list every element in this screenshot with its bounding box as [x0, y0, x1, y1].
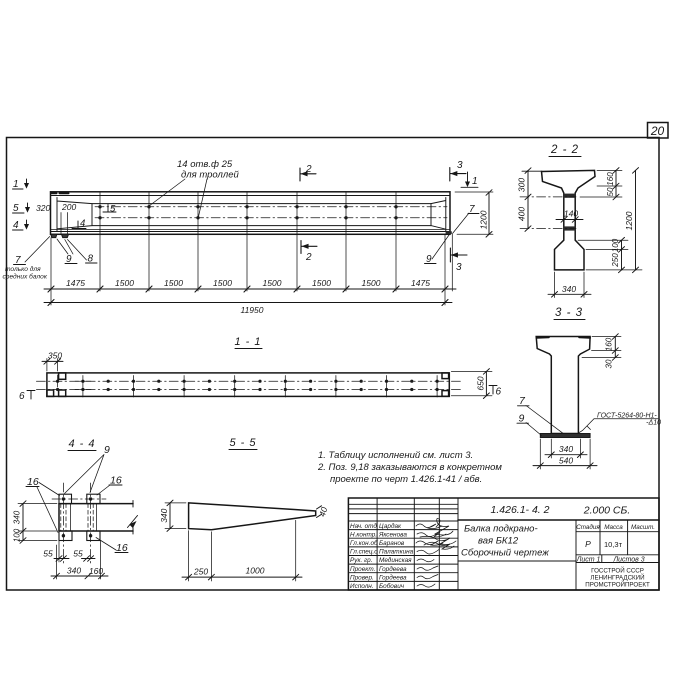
svg-text:10,3т: 10,3т: [604, 540, 623, 549]
svg-text:Яксенова: Яксенова: [378, 531, 407, 538]
svg-text:Проект.: Проект.: [350, 566, 375, 573]
svg-text:30: 30: [605, 359, 614, 368]
svg-text:100: 100: [13, 528, 22, 542]
svg-text:4: 4: [80, 218, 85, 229]
svg-text:средних балок: средних балок: [3, 273, 48, 281]
svg-text:Масшт.: Масшт.: [631, 524, 655, 531]
svg-text:20: 20: [650, 124, 665, 138]
svg-text:1475: 1475: [411, 278, 430, 288]
svg-text:Нач. отд: Нач. отд: [350, 522, 377, 530]
svg-text:Мединская: Мединская: [379, 556, 412, 564]
svg-text:5: 5: [13, 203, 19, 214]
svg-text:540: 540: [559, 455, 573, 465]
svg-text:3 - 3: 3 - 3: [555, 307, 583, 319]
svg-text:1500: 1500: [312, 278, 331, 288]
svg-text:300: 300: [517, 178, 527, 192]
svg-text:1: 1: [13, 179, 19, 190]
svg-text:400: 400: [517, 207, 527, 221]
svg-text:Гордеева: Гордеева: [379, 573, 407, 581]
svg-text:1200: 1200: [479, 210, 489, 229]
svg-text:320: 320: [36, 203, 50, 213]
svg-text:5 - 5: 5 - 5: [229, 437, 256, 449]
svg-text:160: 160: [606, 172, 615, 186]
svg-text:340: 340: [159, 508, 169, 522]
svg-text:340: 340: [562, 284, 576, 294]
svg-text:1200: 1200: [624, 211, 634, 230]
svg-text:160: 160: [89, 566, 103, 576]
svg-text:Н.контр.: Н.контр.: [350, 531, 377, 538]
svg-text:ПРОМСТРОЙПРОЕКТ: ПРОМСТРОЙПРОЕКТ: [585, 581, 650, 589]
svg-text:3: 3: [456, 262, 462, 273]
svg-text:1500: 1500: [263, 278, 282, 288]
svg-text:9: 9: [519, 413, 525, 425]
svg-text:Баранов: Баранов: [379, 540, 405, 547]
svg-text:340: 340: [67, 566, 81, 576]
svg-text:160: 160: [605, 337, 614, 351]
svg-text:1: 1: [472, 176, 478, 187]
svg-text:-Δ10: -Δ10: [646, 420, 661, 427]
svg-text:250: 250: [193, 567, 208, 577]
svg-text:Балка подкрано-: Балка подкрано-: [464, 524, 538, 535]
svg-text:Сборочный чертеж: Сборочный чертеж: [461, 548, 549, 559]
svg-text:Гл.спец.о: Гл.спец.о: [350, 549, 378, 556]
svg-text:Гордеева: Гордеева: [379, 565, 407, 573]
svg-text:1475: 1475: [66, 278, 85, 288]
svg-text:50: 50: [606, 187, 615, 196]
svg-text:55: 55: [43, 549, 53, 559]
svg-text:100: 100: [611, 238, 620, 252]
svg-text:350: 350: [48, 351, 62, 361]
svg-text:ГОССТРОЙ СССР: ГОССТРОЙ СССР: [591, 567, 644, 575]
svg-text:Цардак: Цардак: [379, 522, 402, 530]
svg-text:650: 650: [476, 376, 486, 390]
svg-text:4 - 4: 4 - 4: [68, 438, 95, 450]
svg-text:5: 5: [110, 204, 116, 215]
svg-text:1500: 1500: [213, 278, 232, 288]
svg-text:1000: 1000: [246, 566, 265, 576]
svg-text:Рук. гр.: Рук. гр.: [350, 557, 373, 564]
svg-text:4: 4: [13, 220, 19, 231]
svg-text:2: 2: [305, 164, 312, 175]
svg-text:2. Поз. 9,18 заказываются в ко: 2. Поз. 9,18 заказываются в конкретном: [317, 462, 502, 473]
svg-text:Провер.: Провер.: [350, 574, 374, 581]
svg-text:Исполн.: Исполн.: [350, 583, 374, 590]
svg-text:1. Таблицу исполнений см. лис: 1. Таблицу исполнений см. лист 3.: [318, 450, 473, 461]
svg-text:1500: 1500: [362, 278, 381, 288]
svg-text:1500: 1500: [115, 278, 134, 288]
svg-text:3: 3: [457, 160, 463, 171]
svg-text:14 отв.ф 25: 14 отв.ф 25: [177, 159, 233, 170]
svg-text:проекте по черт 1.426.1-41 / а: проекте по черт 1.426.1-41 / абв.: [330, 474, 482, 485]
svg-text:2 - 2: 2 - 2: [550, 144, 579, 156]
svg-text:для троллей: для троллей: [181, 170, 239, 181]
svg-text:2.000 СБ.: 2.000 СБ.: [583, 505, 631, 517]
svg-text:250: 250: [611, 253, 620, 268]
svg-text:Бобович: Бобович: [379, 582, 405, 590]
svg-text:2: 2: [305, 252, 312, 263]
svg-text:9: 9: [104, 444, 110, 456]
svg-text:11950: 11950: [240, 305, 263, 315]
svg-text:200: 200: [61, 202, 76, 212]
svg-text:Стадия: Стадия: [576, 523, 600, 531]
svg-text:340: 340: [559, 444, 573, 454]
svg-text:1.426.1- 4. 2: 1.426.1- 4. 2: [491, 504, 550, 516]
svg-text:Масса: Масса: [604, 524, 623, 531]
svg-text:Р: Р: [585, 539, 591, 549]
svg-text:55: 55: [73, 549, 83, 559]
svg-text:только для: только для: [5, 265, 41, 273]
svg-text:Палаткина: Палаткина: [379, 549, 414, 556]
svg-text:ЛЕНИНГРАДСКИЙ: ЛЕНИНГРАДСКИЙ: [590, 574, 644, 582]
svg-text:Гл.кон.об: Гл.кон.об: [350, 539, 378, 547]
svg-text:вая БК12: вая БК12: [478, 536, 519, 547]
svg-text:1500: 1500: [164, 278, 183, 288]
svg-text:340: 340: [13, 510, 22, 524]
svg-text:6: 6: [496, 387, 502, 398]
svg-text:1 - 1: 1 - 1: [234, 336, 261, 348]
svg-text:6: 6: [19, 391, 25, 402]
